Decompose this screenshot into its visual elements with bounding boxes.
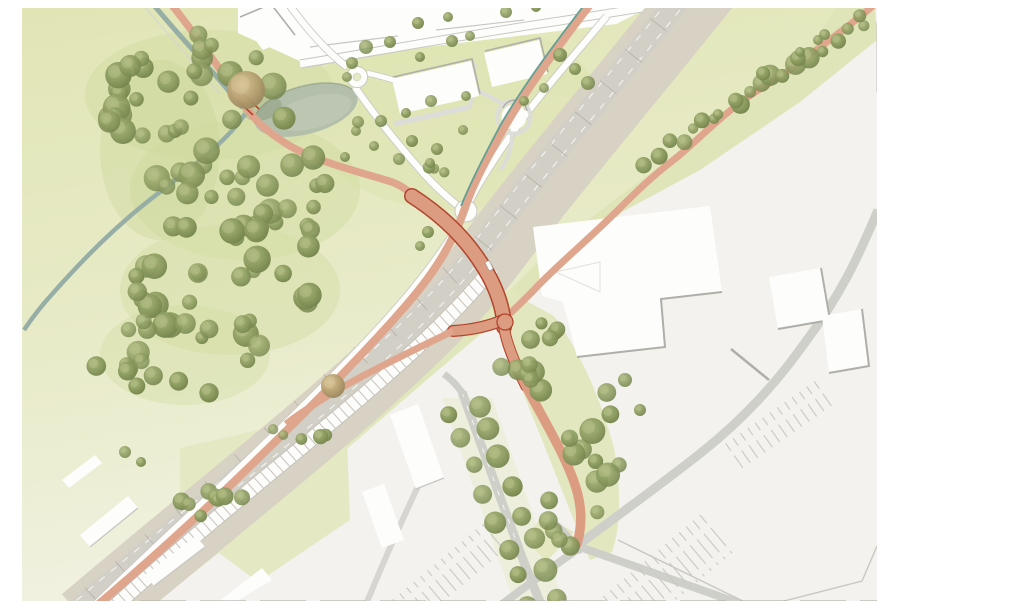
east-square-building — [769, 268, 830, 329]
tree — [144, 366, 163, 385]
tree — [521, 356, 538, 373]
tree — [393, 153, 405, 165]
tree — [352, 116, 364, 128]
tree — [234, 489, 250, 505]
tree — [176, 217, 197, 238]
tree — [274, 265, 292, 283]
tree — [248, 335, 270, 357]
tree — [301, 145, 325, 169]
tree — [199, 383, 218, 402]
tree — [272, 107, 295, 130]
tree — [817, 46, 828, 57]
tree — [553, 48, 567, 62]
tree — [415, 241, 425, 251]
tree — [359, 40, 373, 54]
tree — [473, 485, 492, 504]
t-junction-circle — [497, 314, 513, 330]
site-plan-drawing — [0, 0, 1024, 614]
tree — [194, 510, 207, 523]
tree — [204, 190, 218, 204]
tree — [597, 383, 616, 402]
tree — [523, 372, 539, 388]
tree — [756, 66, 770, 80]
tree — [219, 218, 245, 244]
tree — [596, 463, 620, 487]
tree — [222, 110, 242, 130]
tree — [204, 38, 219, 53]
tree — [278, 199, 297, 218]
tree — [524, 528, 545, 549]
tree — [499, 540, 519, 560]
roundabout-island — [353, 73, 361, 81]
tree — [540, 492, 558, 510]
tree — [340, 152, 350, 162]
tree — [219, 170, 235, 186]
tree — [249, 50, 264, 65]
tree — [119, 55, 141, 77]
tree — [243, 246, 270, 273]
tree — [175, 313, 196, 334]
tree — [694, 112, 710, 128]
tree — [425, 95, 437, 107]
tree — [590, 505, 604, 519]
tree — [651, 148, 668, 165]
tree — [297, 235, 320, 258]
tree — [186, 63, 202, 79]
tree — [200, 320, 219, 339]
tree — [278, 430, 288, 440]
tree — [728, 93, 743, 108]
tree — [118, 362, 137, 381]
tree — [128, 282, 147, 301]
tree — [512, 507, 531, 526]
tree — [256, 174, 279, 197]
tree — [313, 429, 328, 444]
tree — [458, 125, 468, 135]
tree — [561, 430, 578, 447]
tree — [87, 356, 107, 376]
tree — [831, 33, 846, 48]
tree — [486, 444, 510, 468]
tree — [98, 110, 120, 132]
tree — [422, 226, 434, 238]
tree — [535, 317, 547, 329]
tree — [440, 406, 457, 423]
tree — [183, 91, 198, 106]
tree — [157, 71, 179, 93]
tree — [551, 531, 568, 548]
tree — [128, 378, 145, 395]
tree — [121, 322, 136, 337]
tree — [169, 372, 188, 391]
site-plan-page — [0, 0, 1024, 614]
tree — [315, 174, 334, 193]
tree — [182, 295, 197, 310]
tree — [581, 76, 595, 90]
tree — [369, 141, 379, 151]
tree — [775, 69, 789, 83]
tree — [713, 109, 724, 120]
tree — [136, 457, 146, 467]
tree — [853, 9, 866, 22]
tree — [602, 405, 620, 423]
tree — [415, 52, 425, 62]
tree — [519, 96, 529, 106]
tree — [401, 108, 411, 118]
tree — [510, 566, 527, 583]
tree-brown — [227, 71, 265, 109]
tree — [188, 263, 208, 283]
tree — [477, 417, 500, 440]
tree-brown — [321, 374, 345, 398]
tree — [795, 47, 805, 57]
tree — [136, 313, 152, 329]
tree — [502, 476, 522, 496]
tree — [227, 188, 245, 206]
tree — [634, 404, 646, 416]
tree — [469, 396, 491, 418]
tree — [542, 330, 558, 346]
tree — [618, 373, 632, 387]
tree — [446, 35, 458, 47]
tree — [539, 511, 558, 530]
tree — [677, 134, 693, 150]
tree — [539, 83, 549, 93]
tree — [533, 558, 557, 582]
tree — [465, 31, 475, 41]
tree — [216, 487, 234, 505]
tree — [182, 497, 196, 511]
tree — [384, 36, 396, 48]
tree — [193, 137, 220, 164]
tree — [431, 143, 443, 155]
tree — [663, 133, 678, 148]
tree — [635, 157, 651, 173]
tree — [237, 155, 260, 178]
tree — [268, 424, 278, 434]
tree — [521, 330, 540, 349]
tree — [842, 23, 854, 35]
tree — [412, 17, 424, 29]
tree — [173, 119, 189, 135]
tree — [158, 178, 175, 195]
tree — [346, 57, 358, 69]
tree — [579, 418, 605, 444]
tree — [451, 428, 471, 448]
tree — [492, 358, 510, 376]
tree — [119, 446, 131, 458]
tree — [152, 312, 178, 338]
tree — [296, 433, 308, 445]
tree — [466, 457, 482, 473]
tree — [234, 315, 252, 333]
tree — [280, 153, 304, 177]
tree — [142, 253, 168, 279]
tree — [244, 219, 268, 243]
tree — [406, 135, 418, 147]
tree — [240, 353, 255, 368]
tree — [297, 283, 322, 308]
tree — [129, 92, 144, 107]
tree — [813, 35, 823, 45]
tree — [569, 63, 581, 75]
tree — [176, 182, 198, 204]
tree — [342, 72, 352, 82]
tree — [461, 91, 471, 101]
tree — [425, 158, 435, 168]
tree — [133, 353, 149, 369]
tree — [306, 200, 321, 215]
tree — [439, 167, 449, 177]
tree — [375, 115, 387, 127]
tree — [484, 511, 506, 533]
east-long-building — [822, 309, 869, 373]
tree — [134, 127, 150, 143]
tree — [128, 268, 144, 284]
tree — [231, 267, 251, 287]
tree — [443, 12, 453, 22]
